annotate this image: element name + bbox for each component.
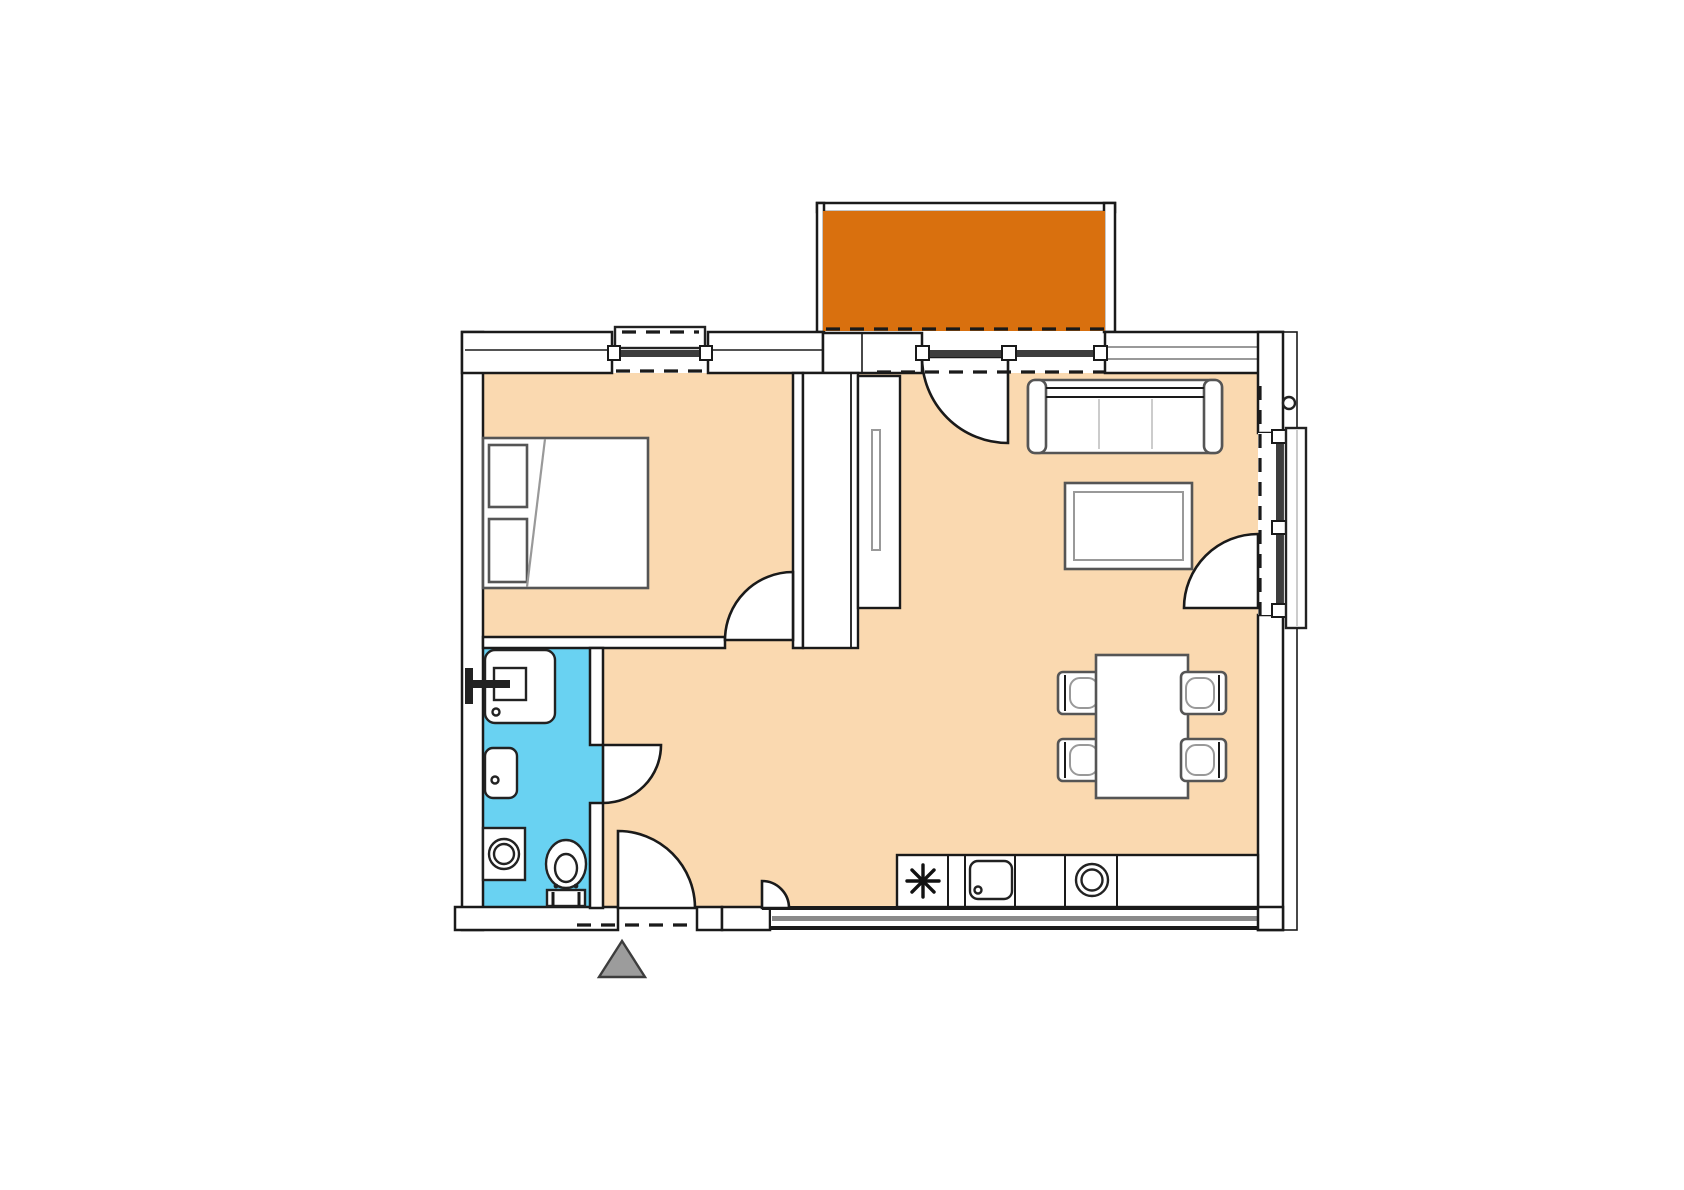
coffee-table [1065, 483, 1192, 569]
wall-west [462, 332, 483, 930]
balcony-glazing-cap-right [1094, 346, 1107, 360]
sofa-armrest-right [1204, 380, 1222, 453]
wall-south-west [455, 907, 618, 930]
kitchen-sink-drain [975, 887, 982, 894]
bed-pillow-top [489, 445, 527, 507]
south-band-glass [772, 916, 1258, 921]
coffee-table-top [1065, 483, 1192, 569]
floor-plan-drawing [0, 0, 1684, 1190]
dining-table [1096, 655, 1188, 798]
shower-pipe [472, 680, 510, 688]
sofa-three-seat [1028, 380, 1222, 453]
east-window-sill [1286, 428, 1306, 628]
entrance-arrow [599, 941, 645, 977]
bathroom-door-threshold [590, 745, 603, 803]
washbasin-drain [492, 777, 499, 784]
sofa-body [1028, 380, 1222, 453]
balcony-railing-top [817, 203, 1115, 212]
wall-north-east-band [1105, 332, 1283, 373]
toilet-bowl-inner [555, 854, 577, 882]
round-appliance-inner [1082, 870, 1103, 891]
bedroom-window-cap-right [700, 346, 712, 360]
entrance-side-panel [722, 907, 770, 930]
wall-bathroom-east-lower [590, 803, 603, 908]
toilet-bolt-left [554, 884, 559, 889]
washing-machine-drum-inner [494, 844, 514, 864]
wall-bedroom-east [793, 373, 803, 648]
bedroom-window-sill [615, 327, 705, 348]
wall-bathroom-east-upper [590, 648, 603, 745]
kitchen-counter [897, 855, 1258, 907]
east-glazing-cap-bottom [1272, 604, 1286, 617]
toilet-bolt-right [574, 884, 579, 889]
wardrobes [803, 373, 900, 648]
balcony-railing-left [817, 203, 824, 332]
wall-east-lower [1258, 615, 1283, 930]
balcony-railing-right [1104, 203, 1115, 332]
wall-south-east-corner [1258, 907, 1283, 930]
balcony-glazing-cap-mid [1002, 346, 1016, 360]
sofa-armrest-left [1028, 380, 1046, 453]
cooktop-icon [907, 865, 939, 897]
wall-north-b [708, 332, 823, 373]
balcony-glazing-cap-left [916, 346, 929, 360]
dining-chair-top-right [1181, 672, 1226, 714]
east-glazing-cap-top [1272, 430, 1286, 443]
window-band-south [762, 907, 1283, 930]
washbasin [485, 748, 517, 798]
wall-north-under-balcony [823, 333, 922, 373]
bedroom-window [608, 327, 712, 371]
balcony-floor [823, 211, 1105, 331]
floor-plan-page [0, 0, 1684, 1190]
wardrobe-tall [803, 373, 858, 648]
downpipe-marker [1283, 397, 1295, 409]
facade-band-east [1283, 332, 1297, 930]
balcony [817, 203, 1115, 332]
entrance-pier [697, 907, 722, 930]
shower-tap-bar [465, 668, 473, 704]
wall-east-upper [1258, 332, 1283, 433]
double-bed [483, 438, 648, 588]
wall-bedroom-south [483, 637, 725, 648]
dining-chair-bottom-right [1181, 739, 1226, 781]
shower-drain [493, 709, 500, 716]
east-glazing-cap-mid [1272, 521, 1286, 534]
wall-north-a [462, 332, 612, 373]
bed-pillow-bottom [489, 519, 527, 582]
bedroom-window-cap-left [608, 346, 620, 360]
toilet [546, 840, 586, 906]
bedroom-window-glazing [612, 350, 708, 357]
